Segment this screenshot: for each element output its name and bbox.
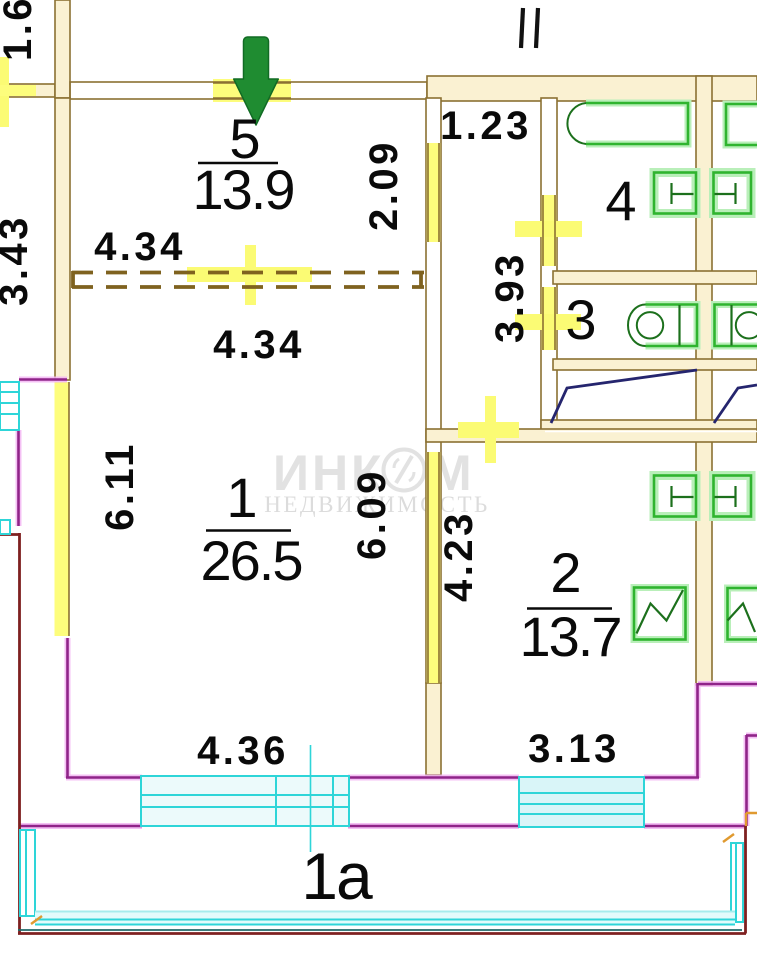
svg-text:3.13: 3.13 bbox=[528, 727, 620, 771]
svg-text:4.34: 4.34 bbox=[94, 225, 186, 269]
svg-text:1.6: 1.6 bbox=[0, 0, 40, 61]
svg-text:6.11: 6.11 bbox=[98, 441, 142, 531]
svg-text:4.23: 4.23 bbox=[437, 510, 481, 602]
svg-text:13.9: 13.9 bbox=[193, 158, 294, 221]
svg-text:6.09: 6.09 bbox=[350, 468, 394, 560]
svg-text:4: 4 bbox=[605, 169, 636, 232]
svg-text:26.5: 26.5 bbox=[201, 529, 302, 592]
svg-text:4.36: 4.36 bbox=[197, 729, 289, 773]
svg-text:3: 3 bbox=[565, 288, 596, 351]
svg-text:2: 2 bbox=[550, 541, 579, 604]
svg-text:1а: 1а bbox=[301, 839, 373, 913]
svg-text:2.09: 2.09 bbox=[362, 139, 406, 231]
svg-text:13.7: 13.7 bbox=[520, 605, 621, 668]
svg-text:4.34: 4.34 bbox=[213, 323, 305, 367]
svg-text:1.23: 1.23 bbox=[440, 104, 532, 148]
svg-text:3.43: 3.43 bbox=[0, 214, 36, 306]
svg-text:3.93: 3.93 bbox=[488, 251, 532, 343]
svg-text:1: 1 bbox=[226, 466, 255, 529]
